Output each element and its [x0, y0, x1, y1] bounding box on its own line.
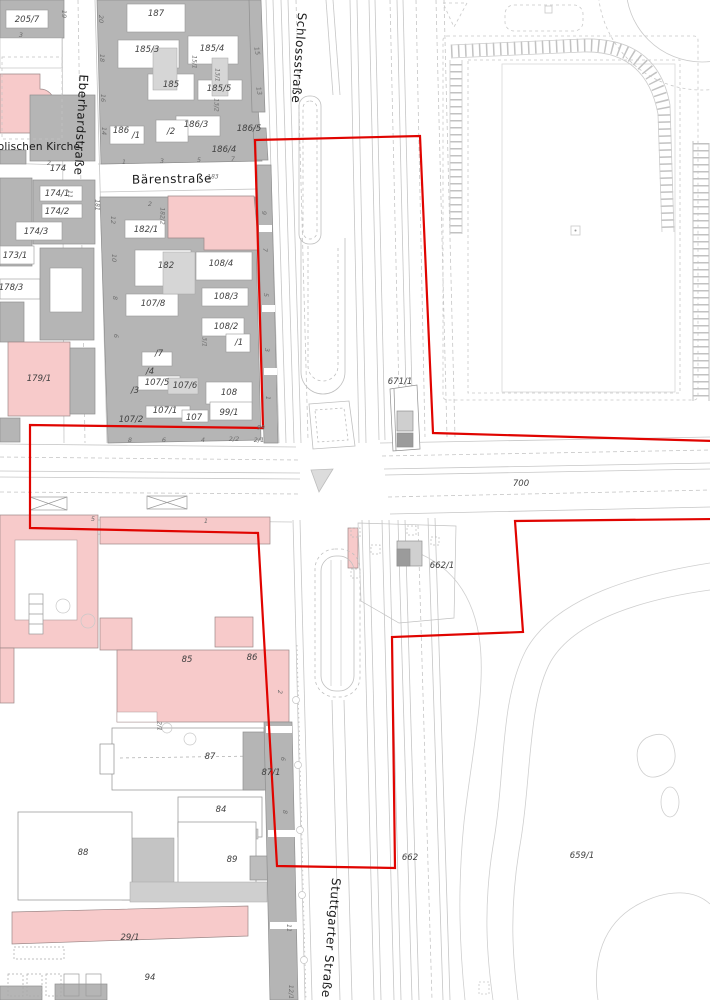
map-canvas — [0, 0, 710, 1000]
tram-platforms — [299, 96, 360, 697]
park-structures — [397, 0, 710, 1000]
city-map: SchlossstraßeEberhardstraßeBärenstraßeSt… — [0, 0, 710, 1000]
